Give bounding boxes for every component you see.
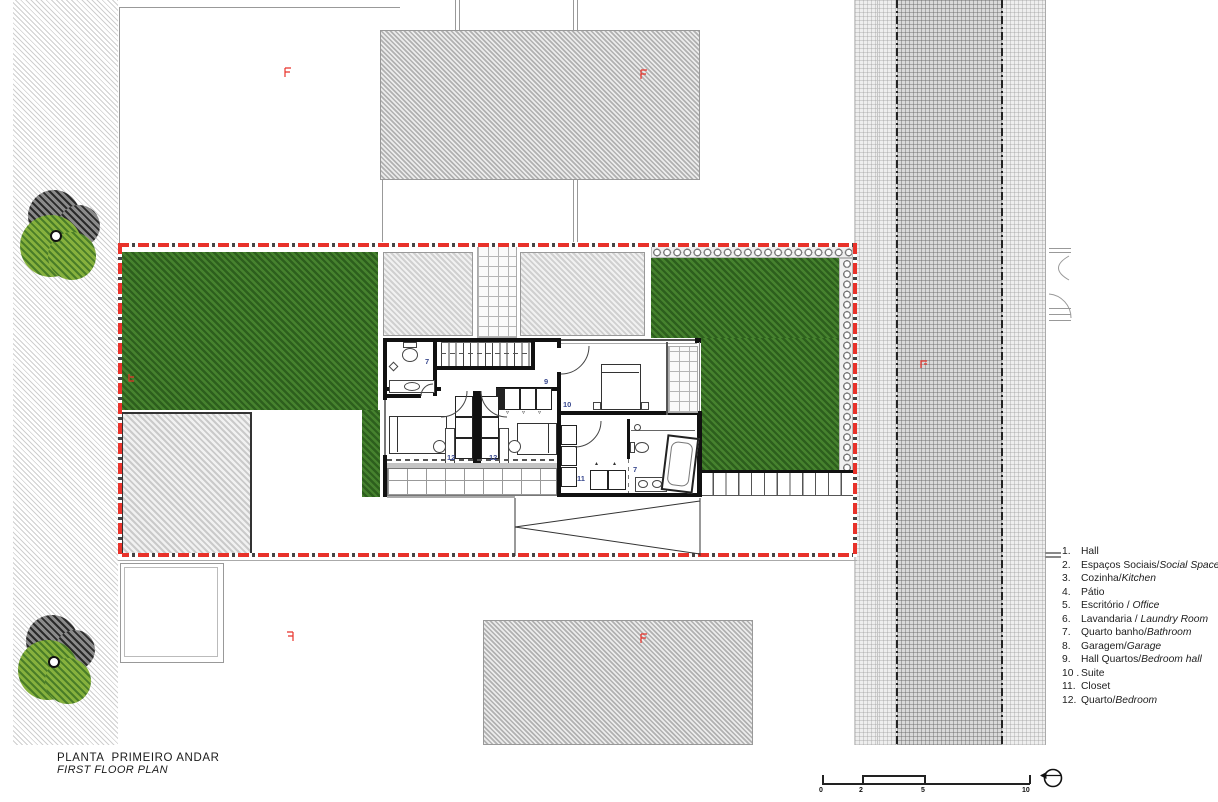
legend-item-label-en: Office — [1133, 600, 1160, 611]
legend-item-number: 2. — [1062, 560, 1081, 571]
legend-leader-line — [1045, 552, 1061, 554]
legend-item-label-en: Bathroom — [1147, 627, 1192, 638]
legend-item-label-pt: Espaços Sociais/ — [1081, 560, 1159, 571]
legend-item-label-pt: Garagem/ — [1081, 641, 1127, 652]
legend-item: 1.Hall — [1062, 546, 1218, 560]
legend-item-number: 12. — [1062, 695, 1081, 706]
legend-item: 10 .Suite — [1062, 668, 1218, 682]
room-label-suite: 10 — [563, 401, 571, 409]
legend-item-label-pt: Suite — [1081, 668, 1104, 679]
legend-item-label-en: Laundry Room — [1141, 614, 1209, 625]
legend-item-label-en: Bedroom hall — [1141, 654, 1202, 665]
door-swing-arcs — [421, 346, 601, 447]
street-detail-arcs — [1049, 256, 1071, 318]
scale-number: 2 — [859, 787, 863, 794]
legend-item: 5.Escritório / Office — [1062, 600, 1218, 614]
legend-leader-line — [1045, 556, 1061, 558]
legend-item-label-pt: Hall — [1081, 546, 1099, 557]
legend-item-label-en: Social Spaces — [1159, 560, 1218, 571]
legend-item-label-en: Garage — [1127, 641, 1161, 652]
title-block: PLANTA PRIMEIRO ANDAR FIRST FLOOR PLAN — [57, 752, 220, 776]
legend-item-number: 10 . — [1062, 668, 1081, 679]
room-label-hall: 9 — [544, 378, 548, 386]
legend-item-number: 6. — [1062, 614, 1081, 625]
plan-title: PLANTA PRIMEIRO ANDAR — [57, 752, 220, 764]
scale-tick — [822, 775, 824, 784]
north-arrow-icon — [1040, 770, 1062, 787]
legend-item-label-pt: Lavandaria / — [1081, 614, 1141, 625]
legend: 1.Hall2.Espaços Sociais/Social Spaces3.C… — [1045, 546, 1218, 716]
legend-item-number: 4. — [1062, 587, 1081, 598]
scale-number: 5 — [921, 787, 925, 794]
scale-number: 0 — [819, 787, 823, 794]
scale-step — [862, 775, 925, 777]
scale-baseline — [822, 783, 1030, 785]
legend-item-label-en: Kitchen — [1122, 573, 1156, 584]
legend-list: 1.Hall2.Espaços Sociais/Social Spaces3.C… — [1062, 546, 1218, 709]
legend-item: 6.Lavandaria / Laundry Room — [1062, 614, 1218, 628]
legend-item: 3.Cozinha/Kitchen — [1062, 573, 1218, 587]
legend-item: 8.Garagem/Garage — [1062, 641, 1218, 655]
legend-item-number: 5. — [1062, 600, 1081, 611]
legend-item-label-pt: Cozinha/ — [1081, 573, 1122, 584]
room-label-bedroom-right: 12 — [489, 454, 497, 462]
section-marker — [129, 68, 927, 643]
driveway-ramp-lines — [387, 497, 700, 556]
room-label-closet: 11 — [577, 475, 585, 483]
legend-item-label-pt: Pátio — [1081, 587, 1104, 598]
legend-item-label-en: Bedroom — [1115, 695, 1157, 706]
legend-item-number: 9. — [1062, 654, 1081, 665]
legend-item-number: 1. — [1062, 546, 1081, 557]
legend-item-number: 11. — [1062, 681, 1081, 692]
legend-item-label-pt: Quarto banho/ — [1081, 627, 1147, 638]
room-label-bath-suite: 7 — [633, 466, 637, 474]
legend-item-number: 3. — [1062, 573, 1081, 584]
legend-item-label-pt: Escritório / — [1081, 600, 1133, 611]
legend-item-label-pt: Closet — [1081, 681, 1110, 692]
scale-tick — [924, 775, 926, 784]
legend-item: 2.Espaços Sociais/Social Spaces — [1062, 560, 1218, 574]
legend-item-number: 8. — [1062, 641, 1081, 652]
legend-item: 12.Quarto/Bedroom — [1062, 695, 1218, 709]
scale-tick — [1029, 775, 1031, 784]
floor-plan-canvas: ▿ ▿ ▿ ▴ ▴ — [0, 0, 1218, 802]
room-label-bedroom-left: 12 — [447, 454, 455, 462]
legend-item-label-pt: Hall Quartos/ — [1081, 654, 1141, 665]
legend-item: 11.Closet — [1062, 681, 1218, 695]
legend-item-label-pt: Quarto/ — [1081, 695, 1115, 706]
legend-item: 7.Quarto banho/Bathroom — [1062, 627, 1218, 641]
legend-item: 4.Pátio — [1062, 587, 1218, 601]
legend-item: 9.Hall Quartos/Bedroom hall — [1062, 654, 1218, 668]
plan-title-en: FIRST FLOOR PLAN — [57, 764, 220, 776]
room-label-bath-upper: 7 — [425, 358, 429, 366]
plan-line-overlay — [0, 0, 1218, 802]
legend-item-number: 7. — [1062, 627, 1081, 638]
scale-number: 10 — [1022, 787, 1030, 794]
